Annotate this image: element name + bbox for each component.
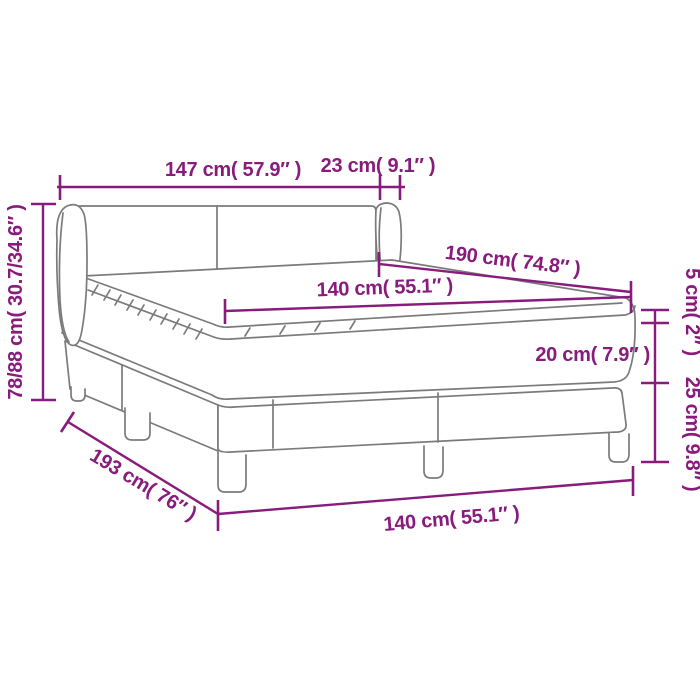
bed-dimension-diagram: 147 cm( 57.9″ ) 23 cm( 9.1″ ) 78/88 cm( … — [0, 0, 700, 700]
leg-back-left — [71, 387, 85, 401]
dim-label-mattress-height: 20 cm( 7.9″ ) — [535, 344, 650, 366]
dimension-tick — [61, 412, 74, 432]
dim-headboard-height: 78/88 cm( 30.7/34.6″ ) — [5, 204, 56, 400]
dim-headboard-width: 147 cm( 57.9″ ) 23 cm( 9.1″ ) — [57, 155, 435, 200]
dim-label-headboard-width: 147 cm( 57.9″ ) — [165, 159, 301, 181]
dim-label-headboard-wing-depth: 23 cm( 9.1″ ) — [321, 155, 436, 177]
leg-front-corner — [218, 452, 246, 492]
dim-label-topper-height: 5 cm( 2″ ) — [681, 268, 700, 356]
diagram-canvas: 147 cm( 57.9″ ) 23 cm( 9.1″ ) 78/88 cm( … — [0, 0, 700, 700]
leg-foot-right — [609, 433, 629, 462]
dim-label-base-length: 193 cm( 76″ ) — [86, 444, 200, 525]
dim-label-base-height: 25 cm( 9.8″ ) — [681, 377, 700, 492]
dimension-line — [218, 480, 633, 514]
dim-label-headboard-height: 78/88 cm( 30.7/34.6″ ) — [5, 204, 27, 399]
dim-label-base-width: 140 cm( 55.1″ ) — [383, 502, 521, 536]
leg-side-left — [125, 408, 150, 440]
leg-foot-middle — [424, 446, 443, 478]
